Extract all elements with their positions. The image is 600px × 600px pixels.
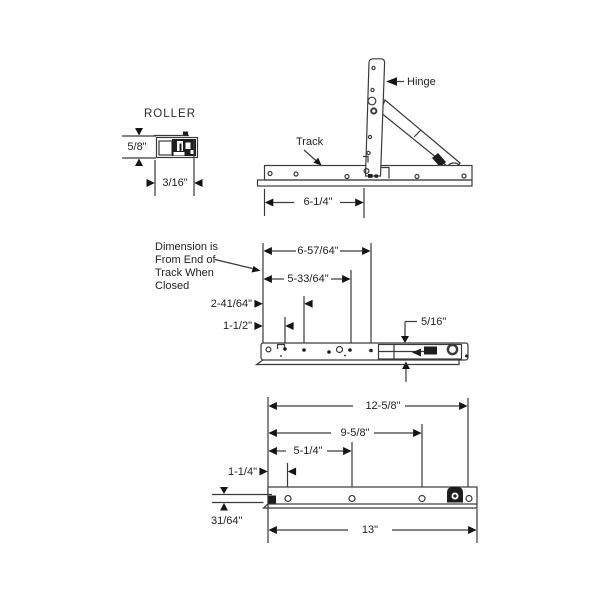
bottom-dim-9-5-8-label: 9-5/8" bbox=[331, 427, 379, 439]
roller-height-dim-label: 5/8" bbox=[120, 141, 154, 153]
closed-dimension-note-line-1: Dimension is bbox=[155, 241, 218, 254]
bottom-dim-12-5-8-label: 12-5/8" bbox=[353, 400, 413, 412]
closed-dimension-note-line-2: From End of bbox=[155, 254, 216, 267]
mid-dim-5-33-64-label: 5-33/64" bbox=[278, 273, 338, 285]
middle-view-drawing bbox=[215, 243, 468, 382]
closed-dimension-note-line-4: Closed bbox=[155, 280, 189, 293]
bottom-dim-1-1-4-label: 1-1/4" bbox=[216, 466, 257, 478]
top-pivot-dim-label: 6-1/4" bbox=[294, 196, 342, 208]
hinge-label: Hinge bbox=[407, 76, 436, 88]
diagram-lineart bbox=[0, 0, 600, 600]
roller-width-dim-label: 3/16" bbox=[157, 177, 193, 189]
bottom-dim-13-label: 13" bbox=[350, 524, 390, 536]
roller-section-title: ROLLER bbox=[143, 108, 197, 120]
top-view-drawing bbox=[258, 59, 473, 218]
mid-dim-1-1-2-label: 1-1/2" bbox=[211, 320, 252, 332]
mid-dim-2-41-64-label: 2-41/64" bbox=[201, 298, 252, 310]
mid-dim-5-16-label: 5/16" bbox=[421, 316, 446, 328]
mid-dim-6-57-64-label: 6-57/64" bbox=[288, 245, 348, 257]
bottom-dim-5-1-4-label: 5-1/4" bbox=[284, 445, 332, 457]
closed-dimension-note-line-3: Track When bbox=[155, 267, 214, 280]
bottom-dim-31-64-label: 31/64" bbox=[211, 515, 242, 527]
hinge-track-diagram: ROLLER 5/8" 3/16" Hinge Track 6-1/4" Dim… bbox=[0, 0, 600, 600]
track-label: Track bbox=[296, 136, 323, 148]
